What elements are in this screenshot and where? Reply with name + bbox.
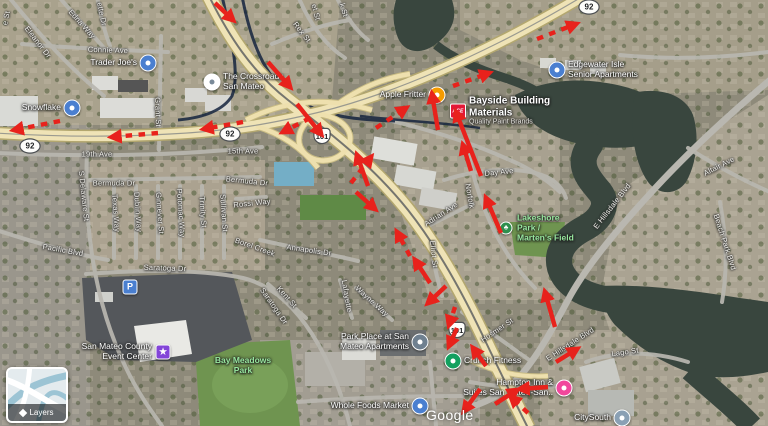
apartment-pin-icon[interactable] <box>549 62 566 79</box>
poi-label-citysouth: CitySouth <box>574 413 611 423</box>
poi-label-san-mateo-county-event-center: San Mateo CountyEvent Center <box>82 342 152 362</box>
apartment-pin-icon[interactable] <box>412 334 429 351</box>
grocery-pin-icon[interactable] <box>140 55 157 72</box>
google-maps-satellite-view: e StEleanor DrEdna Wayette Dret Stk StRe… <box>0 0 768 426</box>
hotel-pin-icon[interactable] <box>556 380 573 397</box>
layers-label: Layers <box>29 408 53 417</box>
poi-layer: Trader Joe'sSnowflakeThe CrossroadsSan M… <box>0 0 768 426</box>
poi-label-whole-foods-market: Whole Foods Market <box>331 401 409 411</box>
poi-label-lakeshore-park: LakeshorePark /Marten's Field <box>517 213 574 242</box>
fitness-pin-icon[interactable] <box>445 353 462 370</box>
poi-label-hampton-inn: Hampton Inn &Suites San Mateo-San.. <box>463 378 553 398</box>
poi-label-trader-joes: Trader Joe's <box>90 58 137 68</box>
poi-label-the-crossroads-san-mateo: The CrossroadsSan Mateo <box>223 72 283 92</box>
parking-icon[interactable]: P <box>123 280 138 295</box>
layers-label-band: Layers <box>8 404 66 421</box>
park-icon[interactable]: ♣ <box>500 222 513 235</box>
ace-logo-icon[interactable]: ACE <box>450 104 466 119</box>
layers-control-button[interactable]: Layers <box>6 367 68 423</box>
poi-label-snowflake: Snowflake <box>22 103 61 113</box>
poi-label-bay-meadows-park: Bay MeadowsPark <box>215 356 271 376</box>
poi-label-edgewater-isle: Edgewater IsleSenior Apartments <box>568 60 638 80</box>
poi-label-crunch-fitness: Crunch Fitness <box>464 356 521 366</box>
restaurant-pin-icon[interactable] <box>429 87 446 104</box>
grocery-pin-icon[interactable] <box>412 398 429 415</box>
place-pin-icon[interactable] <box>614 410 631 426</box>
place-pin-icon[interactable] <box>64 100 81 117</box>
place-pin-icon[interactable] <box>204 74 221 91</box>
poi-label-bayside-building-materials: Bayside BuildingMaterialsQuality Paint B… <box>469 95 550 126</box>
layers-icon <box>19 408 27 416</box>
poi-label-apple-fritter: Apple Fritter <box>380 90 426 100</box>
poi-label-park-place-apartments: Park Place at SanMateo Apartments <box>340 332 409 352</box>
event-pin-icon[interactable]: ★ <box>156 345 171 360</box>
